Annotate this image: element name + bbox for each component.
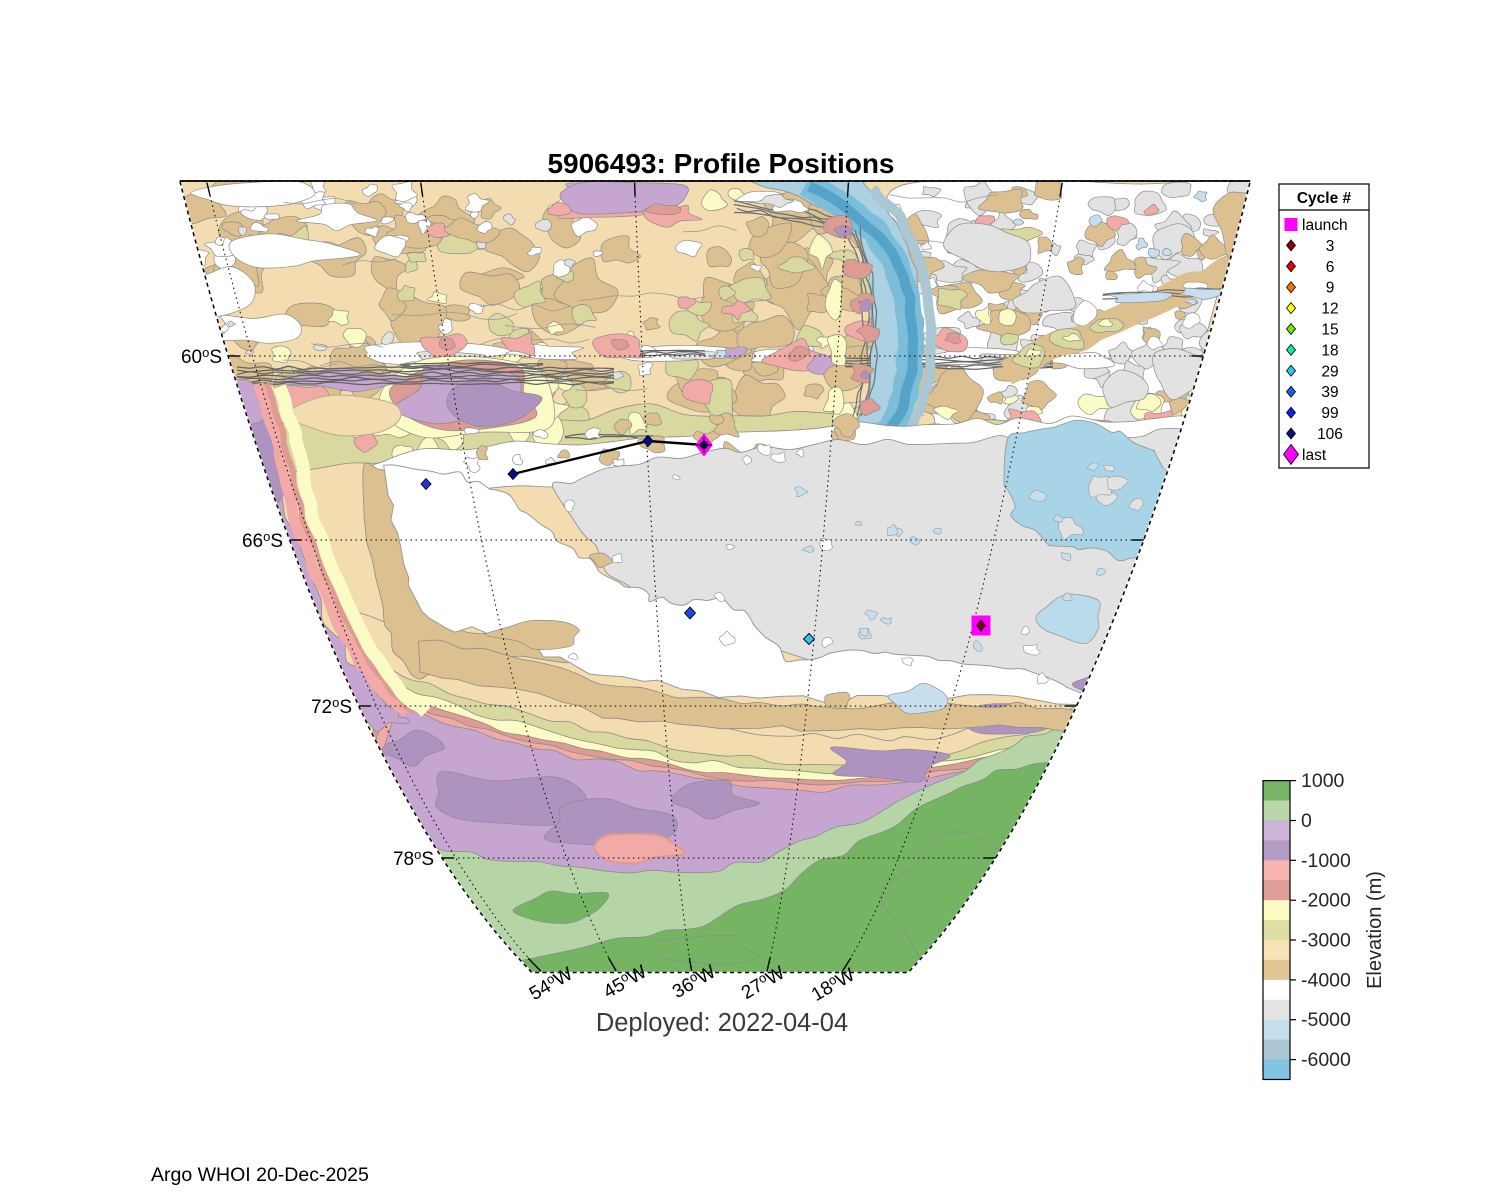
svg-text:106: 106: [1317, 426, 1343, 443]
svg-text:78oS: 78oS: [393, 847, 434, 870]
svg-text:last: last: [1302, 447, 1327, 464]
svg-text:39: 39: [1321, 384, 1338, 401]
svg-text:60oS: 60oS: [181, 345, 222, 368]
svg-text:-2000: -2000: [1301, 890, 1351, 912]
svg-text:1000: 1000: [1301, 770, 1345, 792]
svg-text:15: 15: [1321, 322, 1338, 339]
svg-text:3: 3: [1326, 238, 1335, 255]
svg-text:99: 99: [1321, 405, 1338, 422]
svg-text:-6000: -6000: [1301, 1049, 1351, 1071]
svg-text:-4000: -4000: [1301, 969, 1351, 991]
svg-text:-5000: -5000: [1301, 1009, 1351, 1031]
svg-text:18: 18: [1321, 342, 1338, 359]
svg-text:Deployed: 2022-04-04: Deployed: 2022-04-04: [596, 1009, 848, 1037]
svg-text:-1000: -1000: [1301, 850, 1351, 872]
svg-text:72oS: 72oS: [311, 695, 352, 718]
svg-text:29: 29: [1321, 363, 1338, 380]
svg-text:12: 12: [1321, 301, 1338, 318]
svg-text:Elevation (m): Elevation (m): [1364, 871, 1386, 989]
svg-text:Cycle #: Cycle #: [1297, 190, 1352, 207]
svg-text:66oS: 66oS: [242, 529, 283, 552]
svg-text:-3000: -3000: [1301, 930, 1351, 952]
svg-text:6: 6: [1326, 259, 1335, 276]
svg-text:5906493: Profile Positions: 5906493: Profile Positions: [547, 148, 894, 179]
svg-text:launch: launch: [1302, 217, 1348, 234]
svg-text:Argo WHOI 20-Dec-2025: Argo WHOI 20-Dec-2025: [151, 1164, 369, 1186]
svg-text:9: 9: [1326, 280, 1335, 297]
svg-text:0: 0: [1301, 810, 1312, 832]
